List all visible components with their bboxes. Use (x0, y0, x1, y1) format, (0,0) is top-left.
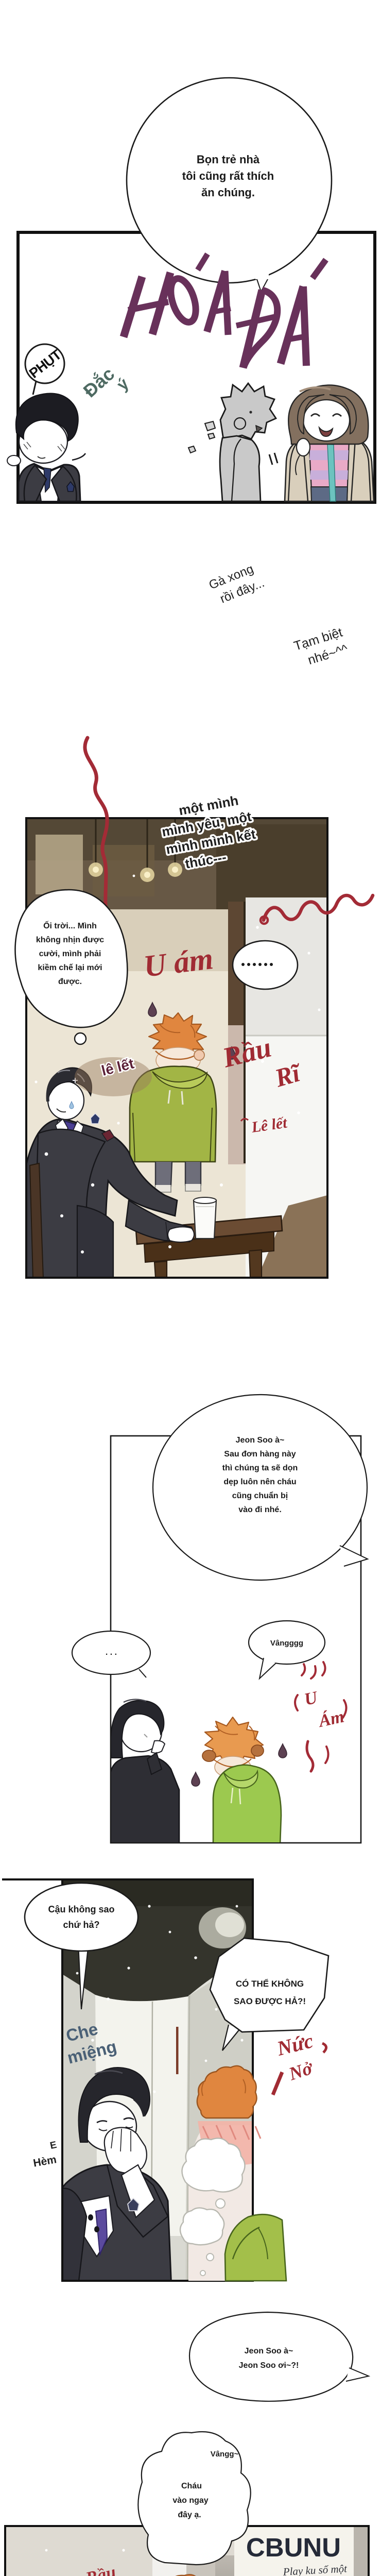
svg-text:ăn chúng.: ăn chúng. (201, 186, 255, 199)
svg-text:Jeon Soo à~: Jeon Soo à~ (236, 1436, 285, 1445)
svg-text:Vângg~: Vângg~ (211, 2450, 239, 2459)
svg-text:Cháu: Cháu (181, 2482, 202, 2490)
svg-text:tôi cũng rất thích: tôi cũng rất thích (182, 170, 274, 182)
svg-text:Cậu không sao: Cậu không sao (48, 1904, 114, 1914)
svg-text:CBUNU: CBUNU (246, 2533, 341, 2562)
svg-text:Bọn trẻ nhà: Bọn trẻ nhà (197, 153, 260, 166)
svg-text:được.: được. (58, 977, 82, 986)
svg-text:Sau đơn hàng này: Sau đơn hàng này (224, 1450, 296, 1459)
svg-text:cười, mình phải: cười, mình phải (39, 950, 101, 958)
svg-text:. . .: . . . (106, 1648, 117, 1657)
svg-text:CÓ THỂ KHÔNG: CÓ THỂ KHÔNG (236, 1979, 304, 1989)
svg-text:SAO ĐƯỢC HẢ?!: SAO ĐƯỢC HẢ?! (234, 1996, 306, 2006)
svg-text:không nhịn được: không nhịn được (36, 936, 104, 944)
svg-text:thì chúng ta sẽ dọn: thì chúng ta sẽ dọn (222, 1464, 298, 1472)
svg-text:Vângggg: Vângggg (270, 1639, 303, 1648)
svg-text:kiềm chế lại mới: kiềm chế lại mới (38, 963, 102, 972)
svg-text:đây ạ.: đây ạ. (178, 2511, 201, 2519)
svg-text:Jeon Soo ơi~?!: Jeon Soo ơi~?! (239, 2361, 299, 2370)
svg-text:vào đi nhé.: vào đi nhé. (238, 1505, 282, 1514)
svg-text:dẹp luôn nên cháu: dẹp luôn nên cháu (223, 1478, 296, 1486)
svg-text:Ối trời... Mình: Ối trời... Mình (43, 920, 97, 930)
svg-text:cũng chuẩn bị: cũng chuẩn bị (232, 1491, 288, 1500)
svg-text:vào ngay: vào ngay (172, 2496, 208, 2505)
svg-text:Jeon Soo à~: Jeon Soo à~ (245, 2347, 293, 2355)
svg-text:chứ hả?: chứ hả? (63, 1920, 99, 1930)
